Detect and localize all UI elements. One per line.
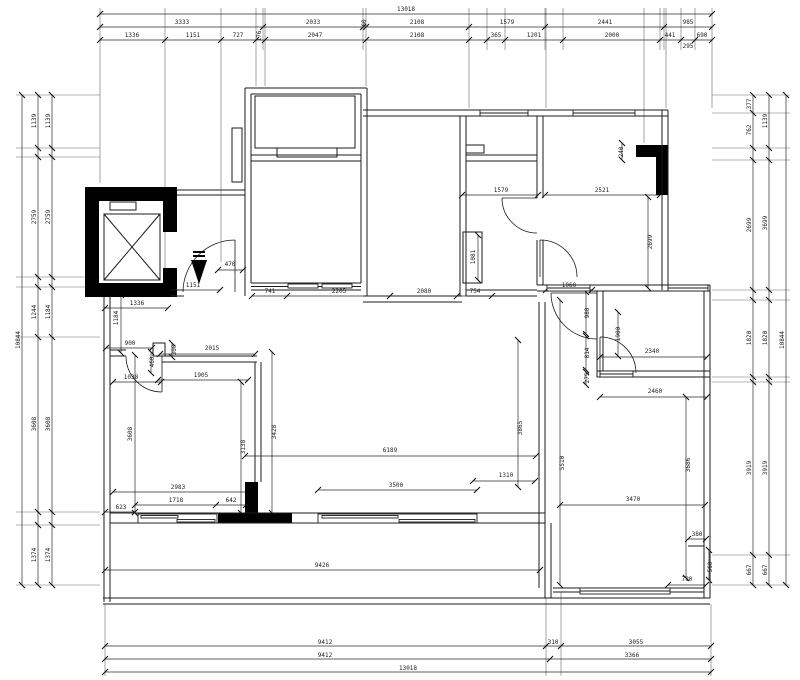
walls (103, 88, 710, 604)
flue-strip (232, 128, 242, 182)
elevator-wall-right-upper (163, 187, 177, 232)
pier-wall-vertical (245, 482, 258, 515)
dim-label: 690 (697, 32, 708, 39)
window-sash (141, 516, 178, 519)
dim-label: 240 (618, 146, 625, 157)
dim-label: 2699 (746, 217, 753, 232)
dim-label: 2000 (605, 32, 620, 39)
dim-label: 2521 (595, 187, 610, 194)
dim-label: 741 (265, 288, 276, 295)
elevator-wall-right-lower (163, 268, 177, 297)
dim-label: 1336 (130, 300, 145, 307)
dim-label: 377 (746, 98, 753, 109)
dim-label: 9426 (315, 562, 330, 569)
dim-label: 2983 (171, 484, 186, 491)
dim-label: 1905 (194, 372, 209, 379)
dim-label: 13018 (397, 6, 415, 13)
elevator-shaft-x-icon (104, 202, 160, 280)
floor-plan-page: 1301833332033602108157924419851336115172… (0, 0, 800, 680)
dim-label: 727 (233, 32, 244, 39)
dim-label: 295 (683, 43, 694, 50)
dim-label: 3500 (389, 482, 404, 489)
dim-label: 3865 (517, 420, 524, 435)
dim-label: 1374 (31, 547, 38, 562)
dim-label: 814 (584, 347, 591, 358)
dim-label: 1139 (45, 113, 52, 128)
dim-label: 1184 (45, 304, 52, 319)
dim-label: 380 (692, 531, 703, 538)
dim-label: 2015 (205, 345, 220, 352)
dim-label: 60 (361, 19, 368, 27)
entry-direction-arrow-icon (191, 252, 207, 284)
dim-label: 1151 (186, 32, 201, 39)
wall-step (466, 145, 484, 153)
dim-label: 1201 (527, 32, 542, 39)
dim-label: 2047 (308, 32, 323, 39)
dim-label: 6189 (383, 447, 398, 454)
dim-label: 642 (226, 497, 237, 504)
door-swing-arc-room-1 (502, 198, 537, 233)
dim-label: 2759 (31, 209, 38, 224)
dim-label: 667 (746, 564, 753, 575)
dim-label: 2460 (648, 388, 663, 395)
dim-label: 1579 (500, 19, 515, 26)
elevator-door-sill (110, 202, 136, 210)
dim-label: 300 (171, 344, 178, 355)
bay-window-lip (277, 148, 337, 157)
dim-label: 3686 (685, 457, 692, 472)
dim-label: 2205 (332, 288, 347, 295)
dim-label: 310 (548, 639, 559, 646)
dim-label: 2699 (647, 234, 654, 249)
dim-label: 3608 (31, 416, 38, 431)
dim-label: 3428 (271, 424, 278, 439)
dim-label: 3919 (762, 460, 769, 475)
dim-label: 780 (682, 576, 693, 583)
dim-label: 2033 (306, 19, 321, 26)
solid-wall-fills (85, 145, 668, 523)
floor-plan-canvas: 1301833332033602108157924419851336115172… (0, 0, 800, 680)
dim-label: 3608 (45, 416, 52, 431)
dim-label: 365 (491, 32, 502, 39)
dim-label: 1060 (562, 282, 577, 289)
dim-label: 3470 (626, 496, 641, 503)
dim-label: 1030 (124, 374, 139, 381)
dim-label: 980 (584, 307, 591, 318)
doors (126, 198, 636, 392)
dim-label: 2080 (417, 288, 432, 295)
dim-label: 3055 (629, 639, 644, 646)
door-swing-arc-room-2 (540, 240, 577, 277)
dim-label: 5510 (559, 455, 566, 470)
dim-label: 2441 (598, 19, 613, 26)
window-sash (288, 284, 318, 288)
dim-label: 754 (470, 288, 481, 295)
dim-label: 460 (149, 356, 156, 367)
dim-label: 2759 (45, 209, 52, 224)
dim-label: 1820 (762, 330, 769, 345)
window-sash (399, 520, 475, 523)
dim-label: 1820 (746, 330, 753, 345)
dim-label: 1336 (125, 32, 140, 39)
dim-label: 560 (707, 561, 714, 572)
dim-label: 10844 (779, 331, 786, 349)
dim-label: 762 (746, 124, 753, 135)
dim-label: 1081 (470, 249, 477, 264)
dim-label: 1184 (113, 310, 120, 325)
dim-label: 3608 (127, 426, 134, 441)
dim-label: 1718 (169, 497, 184, 504)
dim-label: 900 (125, 340, 136, 347)
bay-window-box (255, 96, 355, 148)
dim-label: 9412 (318, 639, 333, 646)
dim-label: 470 (225, 261, 236, 268)
dim-label: 667 (762, 564, 769, 575)
dim-label: 1151 (186, 282, 201, 289)
dim-label: 2108 (410, 19, 425, 26)
pier-wall-horizontal (218, 513, 292, 523)
window-sash (322, 516, 398, 519)
dim-label: 1244 (31, 304, 38, 319)
dim-label: 275 (584, 372, 591, 383)
dim-label: 176 (256, 30, 263, 41)
dimension-lines (22, 14, 786, 672)
dim-label: 9412 (318, 652, 333, 659)
dim-label: 13018 (399, 665, 417, 672)
dim-label: 2340 (645, 348, 660, 355)
dim-label: 3366 (625, 652, 640, 659)
window-sash (177, 520, 215, 523)
dim-label: 3333 (175, 19, 190, 26)
dim-label: 3138 (240, 439, 247, 454)
dim-label: 1579 (494, 187, 509, 194)
dim-label: 1139 (31, 113, 38, 128)
dim-label: 623 (116, 504, 127, 511)
dim-label: 10844 (15, 331, 22, 349)
dim-label: 1900 (615, 326, 622, 341)
dim-label: 1139 (762, 113, 769, 128)
dim-label: 1310 (499, 472, 514, 479)
dim-label: 3919 (746, 460, 753, 475)
dim-label: 441 (665, 32, 676, 39)
elevator-x (104, 214, 160, 280)
elevator-wall-left (85, 187, 99, 297)
dim-label: 985 (683, 19, 694, 26)
arrow-head (191, 260, 207, 284)
wall-lines (103, 88, 710, 604)
dim-label: 2108 (410, 32, 425, 39)
dim-label: 1374 (45, 547, 52, 562)
dimension-labels: 1301833332033602108157924419851336115172… (15, 6, 786, 672)
dim-label: 3699 (762, 215, 769, 230)
